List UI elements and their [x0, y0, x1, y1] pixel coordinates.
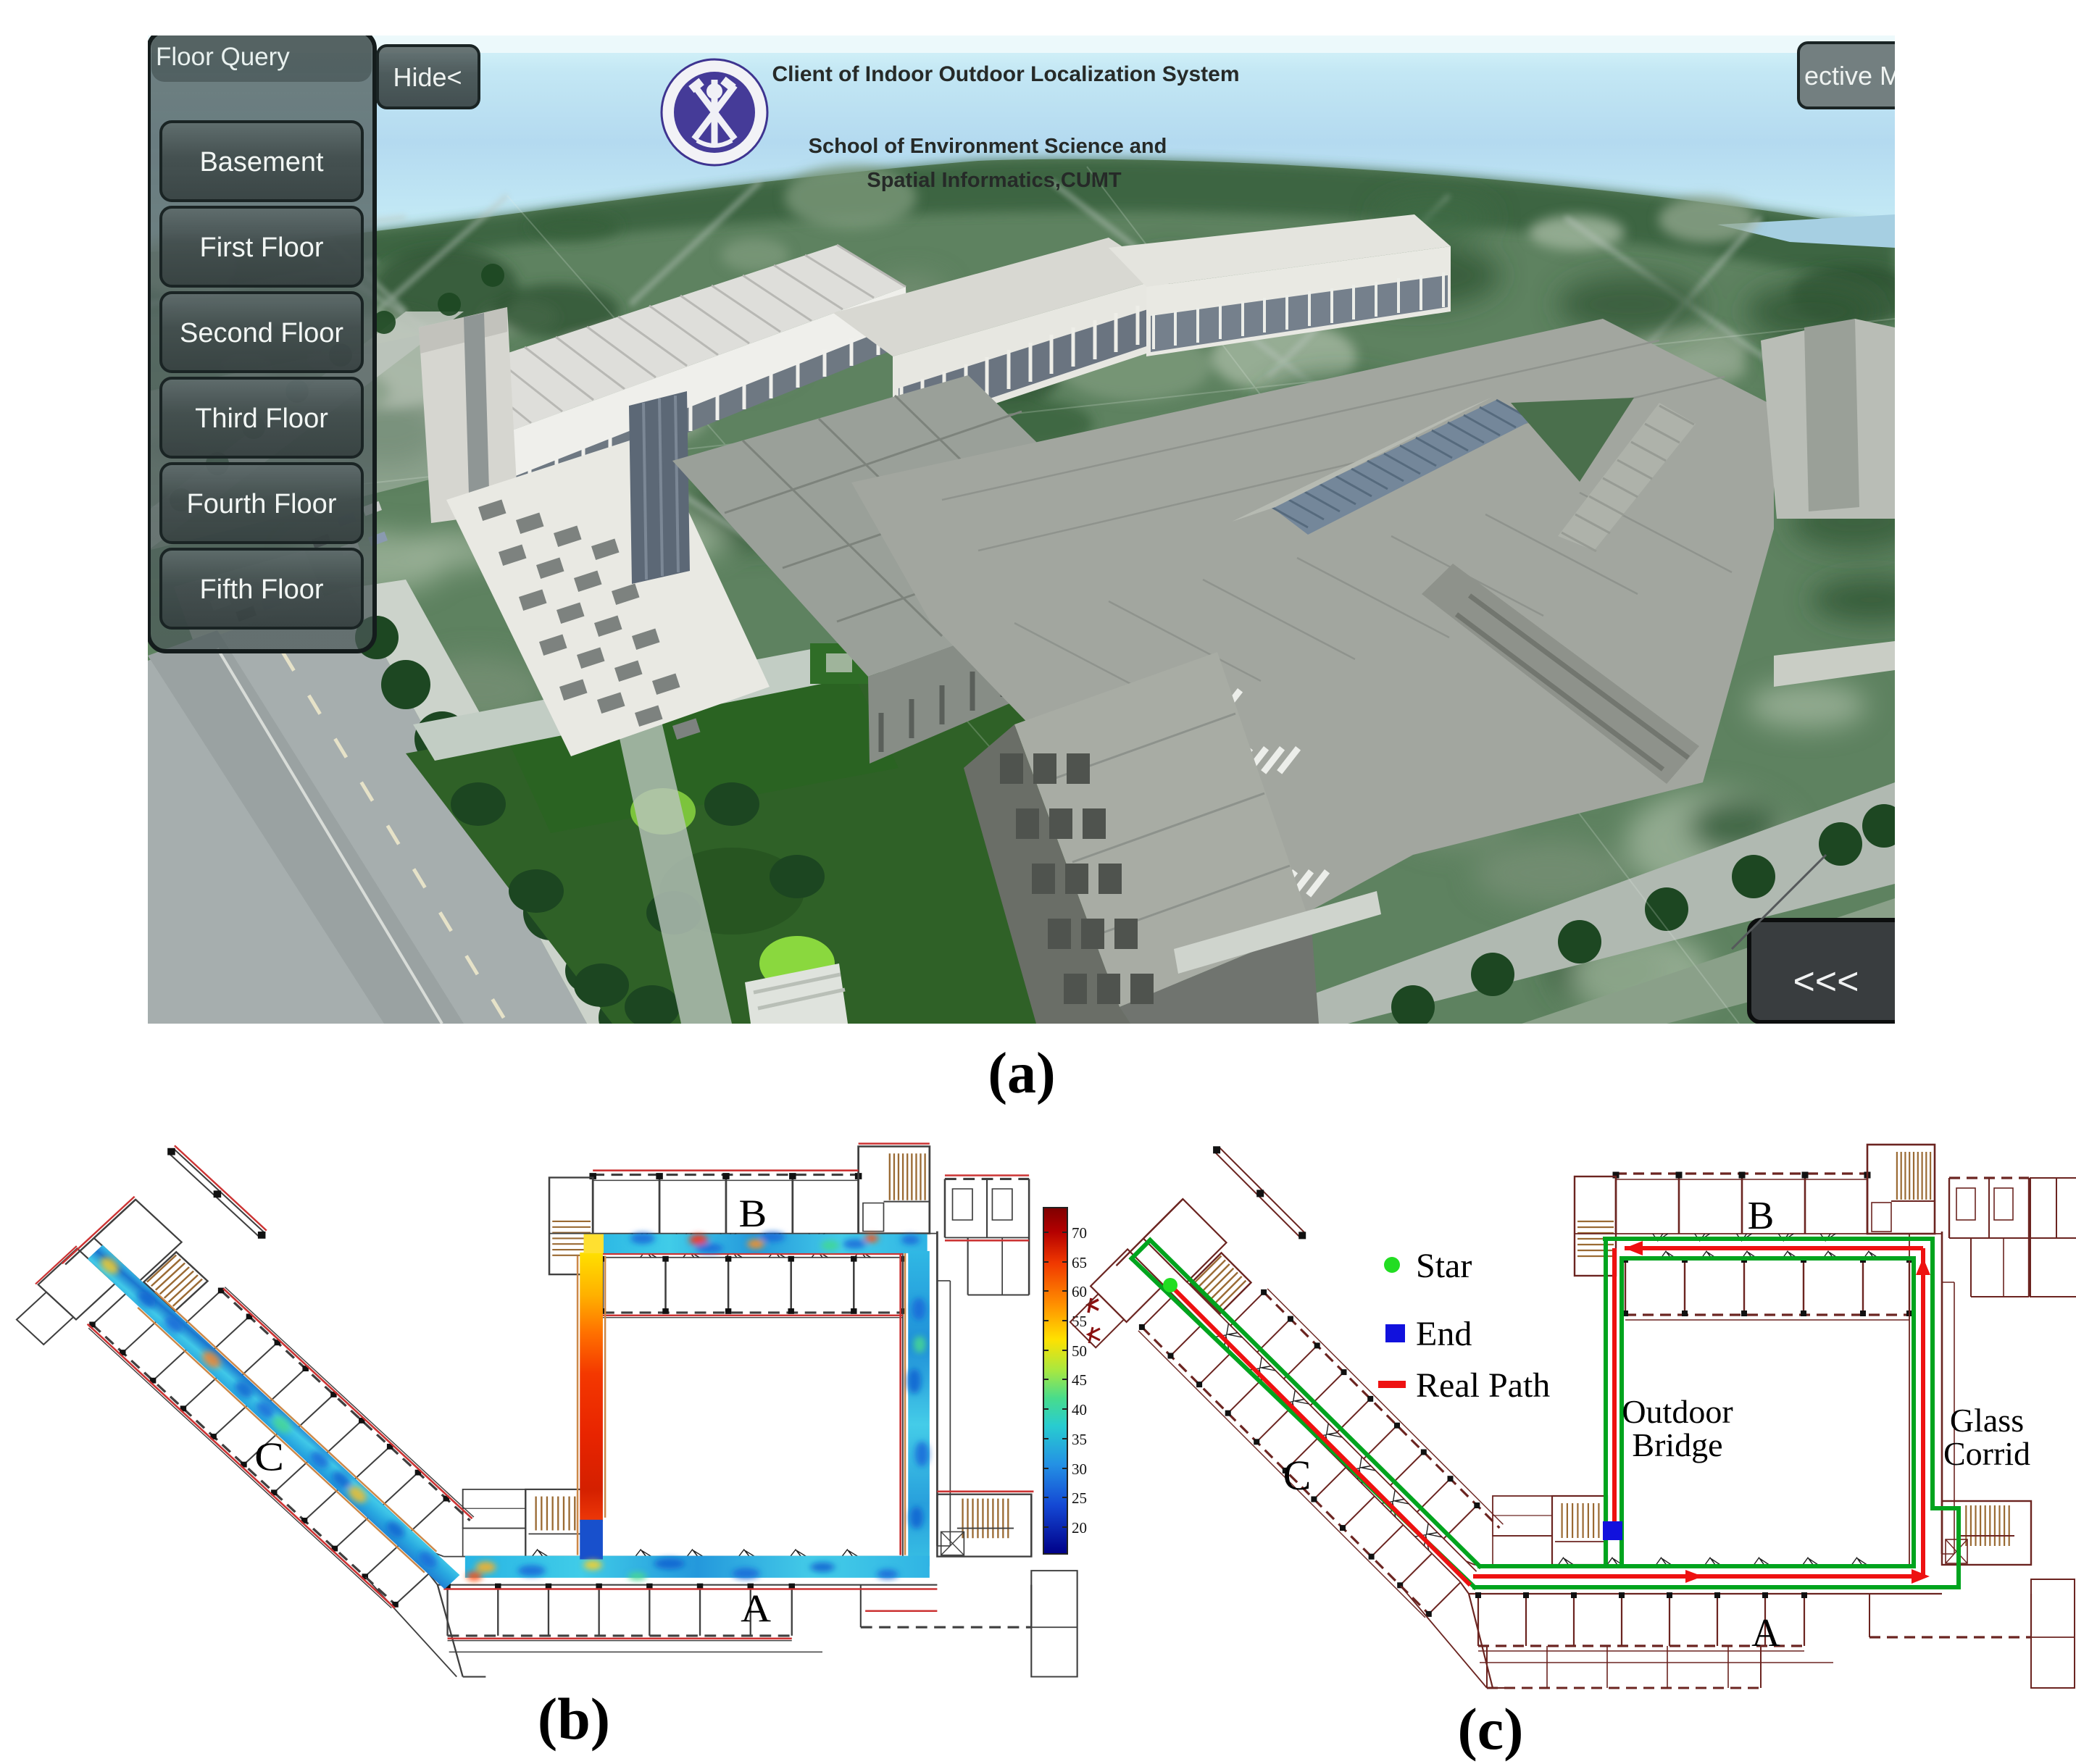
- svg-text:A: A: [741, 1587, 771, 1631]
- svg-text:(a): (a): [988, 1042, 1055, 1105]
- svg-text:(c): (c): [1457, 1696, 1523, 1762]
- svg-text:55: 55: [1072, 1313, 1087, 1330]
- svg-text:65: 65: [1072, 1254, 1087, 1271]
- svg-text:20: 20: [1072, 1519, 1087, 1537]
- svg-text:Fourth Floor: Fourth Floor: [187, 489, 337, 519]
- svg-text:70: 70: [1072, 1224, 1087, 1242]
- svg-text:Outdoor: Outdoor: [1622, 1393, 1733, 1430]
- svg-text:<<<: <<<: [1793, 961, 1859, 1003]
- svg-text:30: 30: [1072, 1460, 1087, 1478]
- svg-text:Client of Indoor Outdoor Local: Client of Indoor Outdoor Localization Sy…: [772, 62, 1239, 86]
- svg-text:Star: Star: [1416, 1247, 1472, 1285]
- svg-text:40: 40: [1072, 1401, 1087, 1418]
- svg-text:Real Path: Real Path: [1416, 1366, 1550, 1405]
- svg-text:A: A: [1751, 1610, 1780, 1655]
- svg-text:C: C: [254, 1434, 284, 1479]
- svg-text:35: 35: [1072, 1431, 1087, 1448]
- svg-text:(b): (b): [538, 1686, 610, 1752]
- svg-text:Glass: Glass: [1950, 1402, 2024, 1439]
- svg-text:B: B: [1748, 1193, 1775, 1237]
- svg-text:End: End: [1416, 1315, 1472, 1353]
- svg-text:Third Floor: Third Floor: [195, 404, 328, 434]
- svg-text:45: 45: [1072, 1371, 1087, 1389]
- svg-text:Hide<: Hide<: [393, 62, 462, 92]
- svg-text:Second Floor: Second Floor: [180, 318, 343, 348]
- svg-text:First Floor: First Floor: [200, 233, 324, 263]
- svg-text:C: C: [1283, 1452, 1312, 1499]
- svg-text:Corrid: Corrid: [1943, 1435, 2030, 1472]
- svg-text:School of Environment Science: School of Environment Science and: [809, 135, 1167, 158]
- svg-text:Spatial Informatics,CUMT: Spatial Informatics,CUMT: [867, 169, 1122, 192]
- svg-text:60: 60: [1072, 1283, 1087, 1300]
- svg-text:B: B: [739, 1192, 767, 1236]
- svg-text:50: 50: [1072, 1342, 1087, 1360]
- svg-text:Floor Query: Floor Query: [156, 43, 290, 71]
- svg-text:Basement: Basement: [199, 147, 324, 177]
- svg-text:Bridge: Bridge: [1632, 1426, 1722, 1463]
- svg-text:25: 25: [1072, 1489, 1087, 1507]
- svg-text:ective M: ective M: [1804, 61, 1901, 91]
- svg-text:Fifth Floor: Fifth Floor: [199, 574, 323, 605]
